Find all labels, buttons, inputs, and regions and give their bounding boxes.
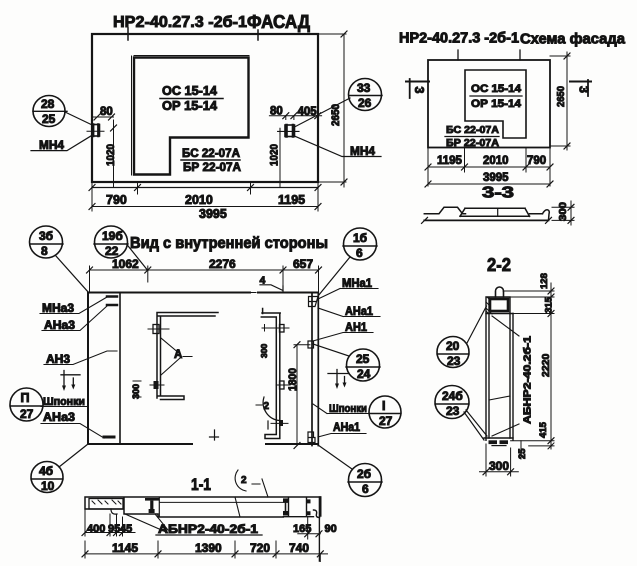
svg-text:6: 6 xyxy=(362,482,369,496)
svg-text:3995: 3995 xyxy=(483,172,509,184)
svg-text:АБНР2-40-2б-1: АБНР2-40-2б-1 xyxy=(158,522,258,536)
svg-text:2650: 2650 xyxy=(330,104,342,126)
svg-text:ОР 15-14: ОР 15-14 xyxy=(162,99,217,113)
svg-text:2010: 2010 xyxy=(185,193,213,207)
svg-text:25: 25 xyxy=(356,352,370,366)
svg-text:БС 22-07А: БС 22-07А xyxy=(446,124,499,136)
svg-text:45: 45 xyxy=(120,523,132,535)
svg-text:26: 26 xyxy=(358,96,372,110)
svg-text:740: 740 xyxy=(289,541,309,555)
svg-text:33: 33 xyxy=(357,81,371,95)
svg-text:3б: 3б xyxy=(39,229,53,243)
svg-text:2: 2 xyxy=(264,401,270,412)
svg-text:БС 22-07А: БС 22-07А xyxy=(182,146,240,160)
svg-text:28: 28 xyxy=(41,97,55,111)
svg-text:25: 25 xyxy=(517,448,528,459)
svg-text:П: П xyxy=(21,391,30,405)
svg-text:24: 24 xyxy=(357,367,371,381)
svg-text:АНа3: АНа3 xyxy=(43,412,75,424)
svg-text:2650: 2650 xyxy=(555,86,567,107)
svg-text:2276: 2276 xyxy=(209,257,236,271)
svg-text:1390: 1390 xyxy=(195,541,222,555)
svg-text:2010: 2010 xyxy=(483,155,509,167)
svg-text:БР 22-07А: БР 22-07А xyxy=(446,137,499,149)
svg-text:10: 10 xyxy=(41,479,55,493)
svg-text:1062: 1062 xyxy=(112,257,139,271)
svg-text:ФАСАД: ФАСАД xyxy=(247,12,310,32)
svg-text:657: 657 xyxy=(293,257,313,271)
svg-text:400: 400 xyxy=(87,523,105,535)
svg-text:27: 27 xyxy=(379,414,393,428)
svg-text:3: 3 xyxy=(577,86,591,93)
svg-text:25: 25 xyxy=(42,112,56,126)
svg-text:20: 20 xyxy=(446,339,460,353)
svg-text:27: 27 xyxy=(20,407,34,421)
svg-text:НР2-40.27.3 -2б-1: НР2-40.27.3 -2б-1 xyxy=(113,14,247,31)
svg-text:2220: 2220 xyxy=(540,353,552,377)
svg-text:6: 6 xyxy=(356,246,363,260)
svg-text:95: 95 xyxy=(108,523,120,535)
svg-text:23: 23 xyxy=(447,354,461,368)
svg-text:2б: 2б xyxy=(357,467,371,481)
svg-text:790: 790 xyxy=(527,155,546,167)
svg-text:Схема фасада: Схема фасада xyxy=(520,32,626,48)
svg-text:3995: 3995 xyxy=(199,207,227,221)
svg-text:1145: 1145 xyxy=(112,541,138,555)
svg-text:165: 165 xyxy=(293,523,311,535)
svg-text:I: I xyxy=(382,399,385,413)
svg-text:1195: 1195 xyxy=(278,193,305,207)
svg-text:8: 8 xyxy=(41,244,48,258)
svg-text:300: 300 xyxy=(259,344,269,358)
svg-text:24б: 24б xyxy=(442,389,463,403)
svg-text:720: 720 xyxy=(250,541,270,555)
svg-text:22: 22 xyxy=(105,244,119,258)
svg-text:ОС 15-14: ОС 15-14 xyxy=(471,83,522,95)
svg-text:АБНР2-40.2б-1: АБНР2-40.2б-1 xyxy=(522,336,534,424)
svg-text:1020: 1020 xyxy=(105,144,117,166)
svg-text:23: 23 xyxy=(446,404,460,418)
svg-text:1800: 1800 xyxy=(287,368,299,391)
svg-text:1020: 1020 xyxy=(269,144,281,166)
svg-text:3: 3 xyxy=(412,87,426,94)
svg-text:1-1: 1-1 xyxy=(191,476,211,494)
svg-text:300: 300 xyxy=(489,459,509,473)
svg-text:НР2-40.27.3 -2б-1: НР2-40.27.3 -2б-1 xyxy=(399,31,519,47)
svg-text:3-3: 3-3 xyxy=(482,185,514,202)
svg-text:МН4: МН4 xyxy=(39,138,64,152)
svg-text:АНа1: АНа1 xyxy=(333,422,361,434)
svg-text:БР 22-07А: БР 22-07А xyxy=(183,160,241,174)
svg-text:300: 300 xyxy=(558,202,569,221)
svg-text:80: 80 xyxy=(100,106,113,118)
svg-text:2-2: 2-2 xyxy=(487,254,511,275)
svg-text:1195: 1195 xyxy=(437,155,463,167)
svg-text:ОС 15-14: ОС 15-14 xyxy=(162,84,217,98)
svg-text:90: 90 xyxy=(325,523,337,535)
svg-text:1б: 1б xyxy=(353,231,367,245)
svg-text:Вид с внутренней стороны: Вид с внутренней стороны xyxy=(130,235,328,252)
svg-text:128: 128 xyxy=(539,273,550,289)
svg-text:ОР 15-14: ОР 15-14 xyxy=(471,98,522,110)
svg-text:2: 2 xyxy=(241,475,247,486)
svg-text:4б: 4б xyxy=(39,464,53,478)
svg-text:315: 315 xyxy=(544,296,555,313)
svg-text:415: 415 xyxy=(538,421,549,438)
svg-text:19б: 19б xyxy=(102,229,123,243)
svg-text:790: 790 xyxy=(106,193,127,207)
